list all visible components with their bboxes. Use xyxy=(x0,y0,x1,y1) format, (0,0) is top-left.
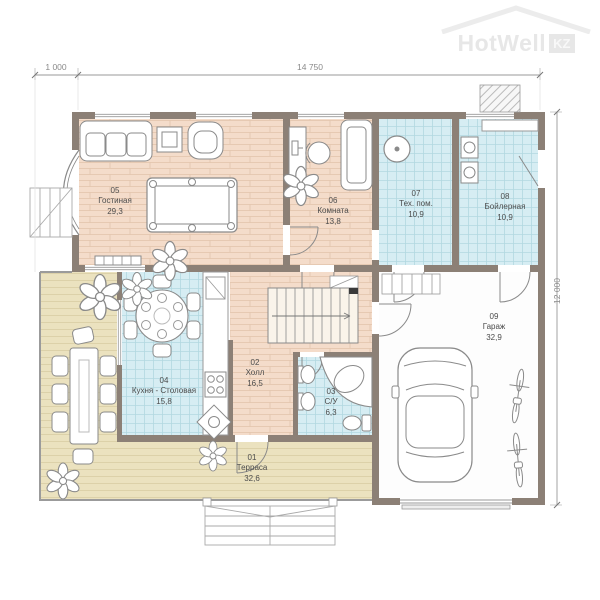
window-icon xyxy=(466,112,514,119)
room-label-bathroom: 03 С/У 6,3 xyxy=(306,387,356,418)
radiator-icon xyxy=(95,256,141,265)
boiler-tank-icon xyxy=(384,136,410,162)
room-name: Холл xyxy=(225,368,285,378)
room-area: 10,9 xyxy=(465,213,545,223)
side-steps xyxy=(30,188,72,237)
room-area: 32,6 xyxy=(212,474,292,484)
garage-door-icon xyxy=(400,498,512,509)
room-name: Гараж xyxy=(454,322,534,332)
dimension-top-main: 14 750 xyxy=(282,62,338,72)
dryer-icon xyxy=(461,162,478,183)
dimension-top-left: 1 000 xyxy=(30,62,82,72)
car-icon xyxy=(392,348,478,482)
floor-plan-page: HotWell KZ 1 000 14 750 12 000 05 Гостин… xyxy=(0,0,600,600)
room-label-garage: 09 Гараж 32,9 xyxy=(454,312,534,343)
room-number: 01 xyxy=(212,453,292,463)
washer-icon xyxy=(461,137,478,158)
chimney-shaft xyxy=(480,85,520,112)
fridge-icon xyxy=(206,277,225,299)
room-name: Терраса xyxy=(212,463,292,473)
sofa-icon xyxy=(80,121,152,161)
room-label-hall: 02 Холл 16,5 xyxy=(225,358,285,389)
hotwell-logo: HotWell KZ xyxy=(438,4,594,64)
logo-text: HotWell xyxy=(457,30,546,57)
room-area: 16,5 xyxy=(225,379,285,389)
window-icon xyxy=(298,112,344,119)
floor-plan-drawing xyxy=(0,0,600,600)
sofa-bed-icon xyxy=(341,120,372,190)
room-name: С/У xyxy=(306,397,356,407)
room-name: Бойлерная xyxy=(465,202,545,212)
room-label-living-room: 05 Гостиная 29,3 xyxy=(80,186,150,217)
room-name: Комната xyxy=(293,206,373,216)
room-name: Гостиная xyxy=(80,196,150,206)
stove-icon xyxy=(205,372,226,397)
armchair-icon xyxy=(188,122,223,159)
room-label-bedroom: 06 Комната 13,8 xyxy=(293,196,373,227)
room-name: Тех. пом. xyxy=(379,199,453,209)
room-number: 03 xyxy=(306,387,356,397)
room-area: 10,9 xyxy=(379,210,453,220)
window-icon xyxy=(85,265,145,272)
room-number: 07 xyxy=(379,189,453,199)
room-area: 15,8 xyxy=(123,397,205,407)
room-area: 29,3 xyxy=(80,207,150,217)
dimension-right: 12 000 xyxy=(552,261,562,321)
room-label-kitchen: 04 Кухня - Столовая 15,8 xyxy=(123,376,205,407)
window-icon xyxy=(95,112,150,119)
logo-row: HotWell KZ xyxy=(438,30,594,57)
room-label-tech-room: 07 Тех. пом. 10,9 xyxy=(379,189,453,220)
entrance-steps xyxy=(203,498,337,545)
garage-entry-steps xyxy=(382,274,440,294)
room-number: 05 xyxy=(80,186,150,196)
room-number: 09 xyxy=(454,312,534,322)
room-area: 6,3 xyxy=(306,408,356,418)
room-number: 02 xyxy=(225,358,285,368)
room-label-terrace: 01 Терраса 32,6 xyxy=(212,453,292,484)
room-label-boiler-room: 08 Бойлерная 10,9 xyxy=(465,192,545,223)
room-number: 08 xyxy=(465,192,545,202)
room-number: 06 xyxy=(293,196,373,206)
room-area: 32,9 xyxy=(454,333,534,343)
room-number: 04 xyxy=(123,376,205,386)
boiler-counter xyxy=(482,120,538,131)
room-name: Кухня - Столовая xyxy=(123,386,205,396)
side-table-icon xyxy=(157,127,182,152)
logo-suffix: KZ xyxy=(549,34,574,53)
room-area: 13,8 xyxy=(293,217,373,227)
pool-table-icon xyxy=(147,178,237,232)
window-icon xyxy=(196,112,252,119)
